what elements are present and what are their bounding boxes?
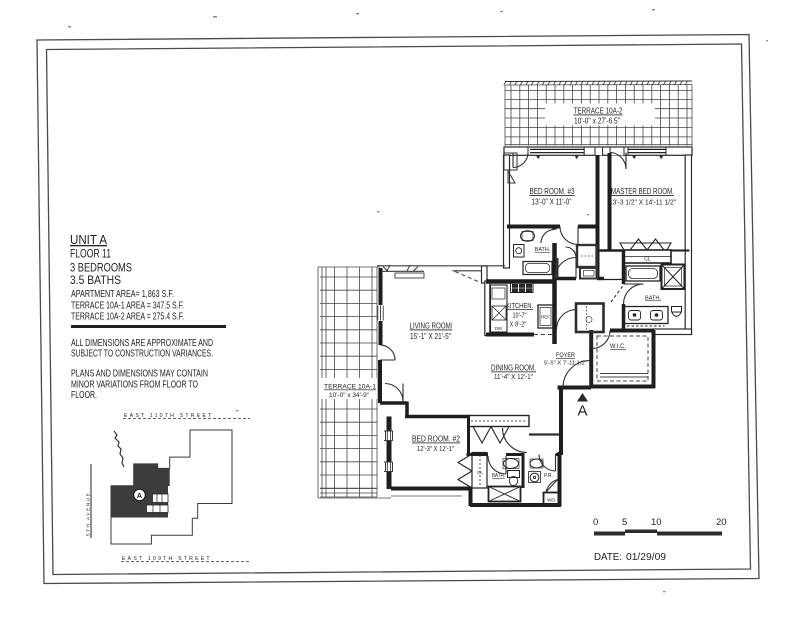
svg-text:CL: CL bbox=[644, 257, 651, 263]
svg-text:DW: DW bbox=[495, 326, 503, 331]
svg-text:15'-1" X 21'-5": 15'-1" X 21'-5" bbox=[410, 332, 451, 341]
svg-text:TERRACE 10A-2 AREA = 275.4 S.F: TERRACE 10A-2 AREA = 275.4 S.F. bbox=[71, 311, 184, 323]
svg-text:CL: CL bbox=[477, 470, 483, 475]
svg-text:APARTMENT AREA= 1,863 S.F.: APARTMENT AREA= 1,863 S.F. bbox=[71, 288, 174, 300]
svg-text:5TH AVENUE: 5TH AVENUE bbox=[86, 492, 91, 536]
svg-text:10'-0" x 34'-9": 10'-0" x 34'-9" bbox=[329, 392, 369, 399]
svg-text:13'-3 1/2" X 14'-11 1/2": 13'-3 1/2" X 14'-11 1/2" bbox=[609, 198, 676, 207]
svg-text:BED ROOM. #3: BED ROOM. #3 bbox=[530, 186, 575, 196]
svg-text:TERRACE 10A-2: TERRACE 10A-2 bbox=[574, 106, 623, 116]
svg-text:P.R.: P.R. bbox=[544, 473, 553, 479]
svg-text:5'-5" X 7'-11 1/2": 5'-5" X 7'-11 1/2" bbox=[544, 361, 587, 367]
svg-text:W/D: W/D bbox=[547, 498, 555, 503]
svg-text:LIVING ROOM/: LIVING ROOM/ bbox=[410, 321, 453, 331]
svg-text:BATH.: BATH. bbox=[492, 473, 505, 479]
svg-text:0: 0 bbox=[593, 517, 598, 528]
svg-text:10'-0" x 27'-6.5": 10'-0" x 27'-6.5" bbox=[574, 117, 620, 126]
svg-text:11'-4" X 12'-1": 11'-4" X 12'-1" bbox=[494, 372, 533, 381]
svg-text:BATH.: BATH. bbox=[535, 247, 550, 253]
svg-text:A: A bbox=[577, 403, 587, 420]
svg-text:SUBJECT TO CONSTRUCTION VARIAN: SUBJECT TO CONSTRUCTION VARIANCES. bbox=[71, 348, 213, 360]
svg-text:13'-0" X 11'-0": 13'-0" X 11'-0" bbox=[532, 198, 572, 207]
svg-text:X 8'-2": X 8'-2" bbox=[510, 322, 527, 329]
svg-text:FOYER: FOYER bbox=[556, 352, 575, 359]
svg-text:12'-3" X 12'-1": 12'-3" X 12'-1" bbox=[417, 444, 454, 453]
svg-text:20: 20 bbox=[716, 517, 727, 528]
svg-text:01/29/09: 01/29/09 bbox=[626, 551, 666, 563]
svg-text:10: 10 bbox=[651, 517, 662, 528]
svg-text:BED ROOM. #2: BED ROOM. #2 bbox=[412, 435, 460, 444]
svg-text:REF: REF bbox=[541, 315, 550, 320]
svg-text:BATH.: BATH. bbox=[645, 296, 662, 302]
svg-text:FLOOR 11: FLOOR 11 bbox=[70, 247, 111, 261]
svg-text:W.I.C.: W.I.C. bbox=[610, 344, 626, 350]
svg-text:3.5 BATHS: 3.5 BATHS bbox=[70, 273, 121, 287]
svg-text:MASTER BED ROOM.: MASTER BED ROOM. bbox=[611, 186, 674, 196]
svg-text:10'-7": 10'-7" bbox=[513, 313, 527, 320]
svg-text:DATE:: DATE: bbox=[594, 551, 622, 563]
svg-text:TERRACE 10A-1: TERRACE 10A-1 bbox=[324, 384, 376, 391]
svg-text:UNIT A: UNIT A bbox=[70, 232, 107, 247]
svg-text:5: 5 bbox=[622, 517, 627, 528]
svg-text:KITCHEN.: KITCHEN. bbox=[506, 303, 533, 310]
svg-text:A: A bbox=[137, 491, 143, 500]
svg-text:FLOOR.: FLOOR. bbox=[71, 389, 97, 401]
